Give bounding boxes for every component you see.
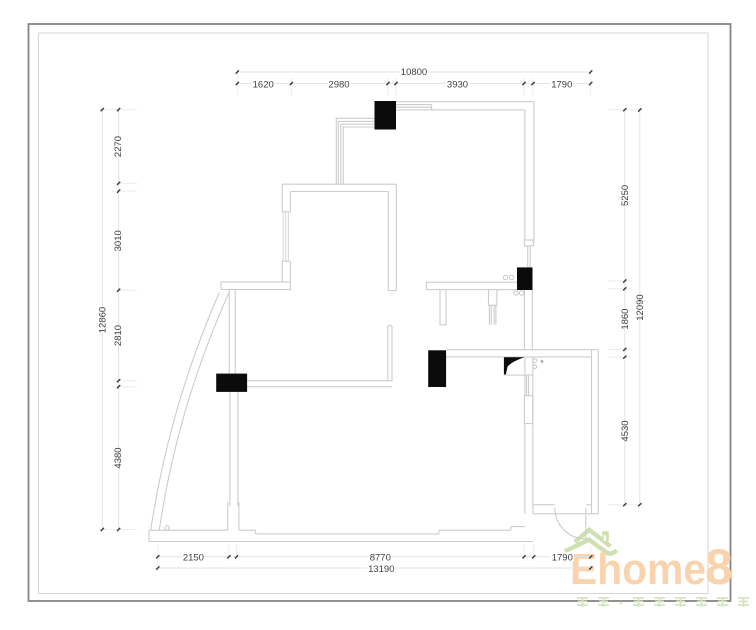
svg-text:1860: 1860	[620, 309, 631, 330]
svg-text:8: 8	[705, 539, 733, 595]
svg-text:13190: 13190	[368, 564, 394, 575]
svg-text:12860: 12860	[98, 307, 109, 333]
svg-text:8770: 8770	[370, 553, 391, 564]
svg-text:12090: 12090	[635, 294, 646, 320]
svg-text:5250: 5250	[620, 185, 631, 206]
svg-text:1790: 1790	[551, 79, 572, 90]
svg-text:1620: 1620	[253, 79, 274, 90]
svg-text:3010: 3010	[113, 230, 124, 251]
svg-text:4530: 4530	[620, 420, 631, 441]
svg-text:4380: 4380	[113, 447, 124, 468]
svg-text:2980: 2980	[328, 79, 349, 90]
svg-text:2270: 2270	[113, 136, 124, 157]
svg-text:10800: 10800	[401, 67, 427, 78]
svg-text:3930: 3930	[447, 79, 468, 90]
svg-text:1790: 1790	[552, 553, 573, 564]
svg-text:2810: 2810	[113, 325, 124, 346]
svg-text:2150: 2150	[183, 553, 204, 564]
